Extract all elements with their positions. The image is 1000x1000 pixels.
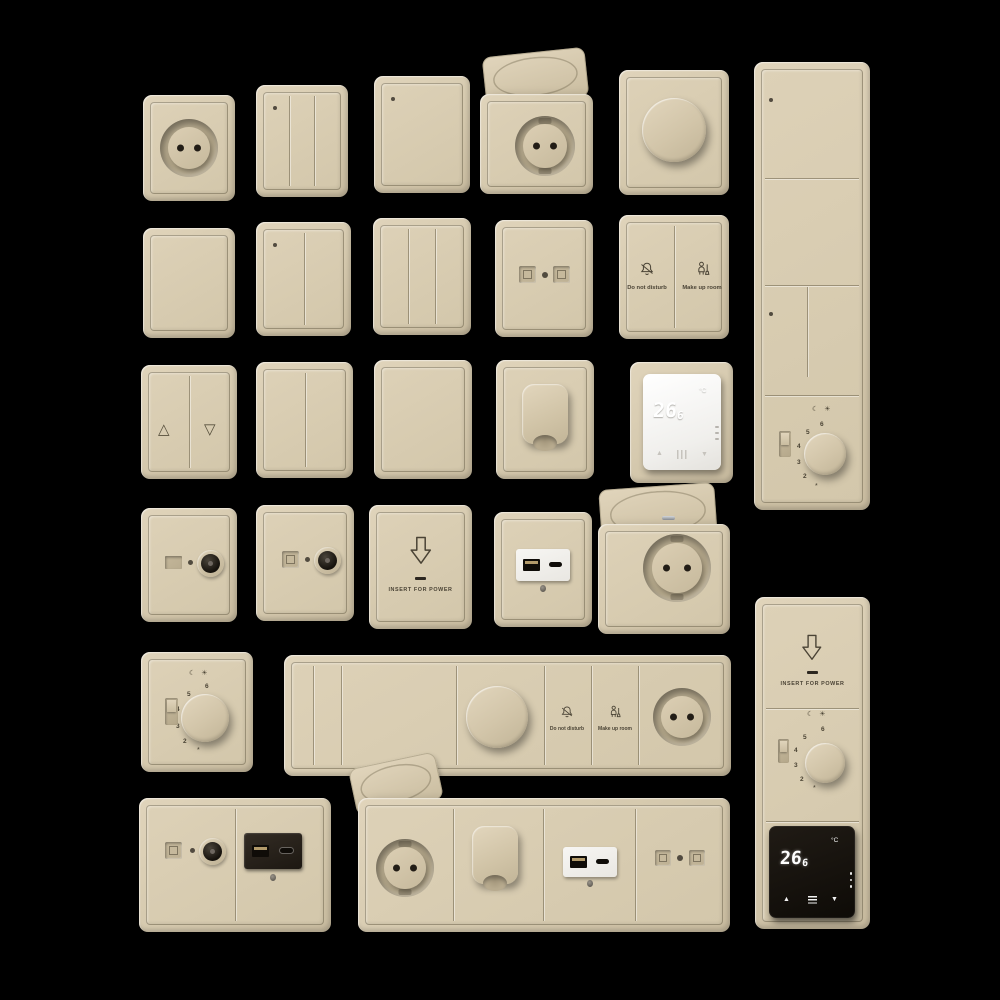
section-divider bbox=[453, 809, 455, 921]
horizontal-multigang-panel[interactable]: Do not disturb Make up room bbox=[284, 655, 731, 776]
switch-rockers[interactable] bbox=[380, 225, 464, 328]
rocker-divider bbox=[289, 96, 291, 186]
dial-number: 3 bbox=[797, 460, 801, 467]
screw bbox=[540, 585, 546, 592]
toggle-handle bbox=[780, 741, 787, 752]
indicator-dot bbox=[273, 243, 277, 247]
horizontal-combo-panel[interactable] bbox=[358, 798, 730, 932]
dial-mode-icons: ☾ ☀ bbox=[807, 711, 826, 718]
indicator-dot bbox=[305, 557, 310, 562]
rocker-divider bbox=[435, 229, 437, 324]
dial-number: 2 bbox=[803, 474, 807, 481]
socket-pin-hole-right bbox=[410, 865, 417, 872]
socket-recess bbox=[643, 534, 711, 602]
port-opening bbox=[286, 555, 295, 564]
dial-number: 6 bbox=[205, 684, 209, 691]
usb-c-port bbox=[280, 848, 293, 853]
rocker-divider bbox=[189, 376, 191, 468]
port-opening bbox=[169, 846, 178, 855]
insert-for-power-label: INSERT FOR POWER bbox=[755, 681, 870, 688]
socket-recess bbox=[376, 839, 434, 897]
dimmer-knob[interactable] bbox=[642, 98, 706, 162]
indicator-dot bbox=[769, 98, 773, 102]
socket-lidded-plate[interactable] bbox=[598, 524, 730, 634]
dial-number: 4 bbox=[794, 748, 798, 755]
section-divider bbox=[765, 285, 859, 287]
media-port bbox=[165, 842, 182, 859]
earth-clip-bottom bbox=[539, 168, 552, 174]
dial-number: 2 bbox=[183, 739, 187, 746]
cable-hood bbox=[522, 384, 568, 444]
card-slot[interactable] bbox=[807, 671, 818, 674]
digital-thermostat-white-plate[interactable]: °C 26 6 ▲ ▼ bbox=[630, 362, 733, 483]
switch-rockers[interactable] bbox=[263, 92, 341, 190]
section-divider bbox=[341, 666, 343, 765]
thermostat-dial-plate[interactable]: ☾ ☀ 6 5 4 3 2 * bbox=[141, 652, 253, 772]
socket-pin-hole-left bbox=[393, 865, 400, 872]
menu-icon[interactable] bbox=[677, 450, 687, 459]
temp-up-button[interactable]: ▲ bbox=[783, 896, 790, 903]
temperature-readout: 26 6 bbox=[653, 398, 684, 422]
make-up-room-label: Make up room bbox=[680, 285, 724, 293]
socket-pin-hole-right bbox=[194, 145, 201, 152]
section-divider bbox=[635, 809, 637, 921]
tv-antenna-socket-plate[interactable] bbox=[256, 505, 354, 621]
dial-number: 2 bbox=[800, 777, 804, 784]
temp-up-button[interactable]: ▲ bbox=[656, 450, 663, 457]
screw bbox=[270, 874, 276, 881]
section-divider bbox=[765, 395, 859, 397]
socket-lidded-plate[interactable] bbox=[480, 94, 593, 194]
temp-integer: 26 bbox=[652, 398, 678, 422]
thermostat-mode-toggle[interactable] bbox=[778, 739, 789, 763]
indicator-dot bbox=[391, 97, 395, 101]
rocker-divider bbox=[314, 96, 316, 186]
center-screw bbox=[677, 855, 683, 861]
temp-fraction: 6 bbox=[801, 858, 808, 869]
dial-number: 5 bbox=[803, 735, 807, 742]
tv-antenna-socket-plate[interactable] bbox=[141, 508, 237, 622]
thermostat-mode-toggle[interactable] bbox=[165, 698, 178, 725]
section-divider bbox=[638, 666, 640, 765]
section-divider bbox=[456, 666, 458, 765]
section-divider bbox=[591, 666, 593, 765]
port-opening bbox=[659, 854, 667, 862]
temp-down-button[interactable]: ▼ bbox=[831, 896, 838, 903]
rocker-divider bbox=[305, 373, 307, 467]
do-not-disturb-label: Do not disturb bbox=[547, 726, 587, 733]
earth-clip-top bbox=[539, 118, 552, 124]
media-port bbox=[165, 556, 182, 569]
cable-outlet-plate[interactable] bbox=[496, 360, 594, 479]
switch-2gang-plate[interactable] bbox=[256, 222, 351, 336]
switch-rockers[interactable] bbox=[263, 369, 346, 471]
moon-icon: ☾ bbox=[807, 711, 813, 718]
data-port-right bbox=[689, 850, 705, 866]
dial-number: 5 bbox=[806, 430, 810, 437]
switch-3gang-plate[interactable] bbox=[373, 218, 471, 335]
port-opening bbox=[693, 854, 701, 862]
blank-switch-plate[interactable] bbox=[143, 228, 235, 338]
socket-face bbox=[168, 127, 211, 170]
usb-insert bbox=[244, 833, 302, 869]
earth-clip-bottom bbox=[671, 594, 684, 600]
screw bbox=[587, 880, 593, 887]
socket-face bbox=[652, 543, 702, 593]
thermostat-dial-knob[interactable] bbox=[804, 433, 846, 475]
indicator-dot bbox=[188, 560, 193, 565]
socket-pin-hole-left bbox=[177, 145, 184, 152]
keycard-holder-plate[interactable]: INSERT FOR POWER bbox=[369, 505, 472, 629]
cable-hood bbox=[472, 826, 518, 884]
service-rockers[interactable] bbox=[626, 222, 722, 332]
section-divider bbox=[235, 809, 237, 921]
dial-mode-icons: ☾ ☀ bbox=[189, 670, 208, 677]
sun-icon: ☀ bbox=[824, 406, 830, 413]
section-divider bbox=[765, 178, 859, 180]
earth-clip-bottom bbox=[399, 889, 412, 895]
arrow-down-outline-icon bbox=[799, 633, 825, 663]
blinds-down-icon: ▽ bbox=[204, 422, 216, 437]
switch-3gang-plate[interactable] bbox=[256, 85, 348, 197]
switch-rocker[interactable] bbox=[150, 235, 228, 331]
frost-mark: * bbox=[813, 785, 816, 792]
side-buttons[interactable] bbox=[715, 426, 719, 440]
socket-pin-hole-left bbox=[533, 143, 540, 150]
temperature-readout: 26 6 bbox=[780, 848, 808, 869]
indicator-dot bbox=[190, 848, 195, 853]
do-not-disturb-label: Do not disturb bbox=[625, 285, 669, 293]
toggle-handle bbox=[781, 433, 789, 445]
section-divider bbox=[766, 708, 859, 710]
coax-connector bbox=[314, 547, 341, 574]
switch-2gang-plate[interactable] bbox=[256, 362, 353, 478]
vertical-multigang-panel[interactable]: ☾ ☀ 6 5 4 3 2 * bbox=[754, 62, 870, 510]
temp-integer: 26 bbox=[779, 848, 802, 869]
unit-label: °C bbox=[831, 838, 838, 845]
dial-mode-icons: ☾ ☀ bbox=[812, 406, 831, 413]
dial-number: 3 bbox=[176, 724, 180, 731]
port-opening bbox=[557, 270, 566, 279]
rocker-divider bbox=[674, 226, 676, 328]
frost-mark: * bbox=[197, 747, 200, 754]
arrow-down-outline-icon bbox=[407, 535, 435, 567]
rocker-divider bbox=[304, 233, 306, 325]
earth-clip-top bbox=[399, 841, 412, 847]
make-up-room-label: Make up room bbox=[595, 726, 635, 733]
section-divider bbox=[543, 809, 545, 921]
earth-clip-top bbox=[671, 536, 684, 542]
thermostat-mode-toggle[interactable] bbox=[779, 431, 791, 457]
section-divider bbox=[544, 666, 546, 765]
data-socket-2port-plate[interactable] bbox=[495, 220, 593, 337]
socket-face bbox=[523, 124, 567, 168]
switch-rockers[interactable] bbox=[263, 229, 344, 329]
switch-rocker[interactable] bbox=[381, 83, 463, 186]
blinds-up-icon: △ bbox=[158, 422, 170, 437]
thermostat-dial-knob[interactable] bbox=[181, 694, 229, 742]
indicator-dot bbox=[769, 312, 773, 316]
hinge-pin bbox=[662, 516, 675, 520]
rocker-divider bbox=[408, 229, 410, 324]
hotel-service-switch-plate[interactable]: Do not disturb Make up room bbox=[619, 215, 729, 339]
maid-icon bbox=[695, 261, 711, 277]
socket-pin-hole-right bbox=[550, 143, 557, 150]
socket-pin-hole-right bbox=[684, 565, 691, 572]
coax-connector bbox=[199, 838, 226, 865]
usb-c-port bbox=[596, 859, 609, 864]
menu-icon[interactable] bbox=[808, 896, 817, 904]
switch-rocker[interactable] bbox=[381, 367, 465, 472]
switch-1gang-plate[interactable] bbox=[374, 360, 472, 479]
maid-icon bbox=[608, 705, 622, 719]
data-port-left bbox=[519, 266, 536, 283]
thermostat-display-black: °C 26 6 ▲ ▼ bbox=[769, 826, 855, 918]
usb-a-port bbox=[252, 845, 269, 857]
data-port-left bbox=[655, 850, 671, 866]
vertical-hotel-panel[interactable]: INSERT FOR POWER ☾ ☀ 6 5 4 3 2 * °C 26 6… bbox=[755, 597, 870, 929]
card-slot[interactable] bbox=[415, 577, 426, 580]
usb-a-port bbox=[523, 559, 540, 571]
moon-icon: ☾ bbox=[189, 670, 195, 677]
sun-icon: ☀ bbox=[201, 670, 207, 677]
socket-pin-hole-left bbox=[670, 714, 677, 721]
coax-connector bbox=[197, 550, 224, 577]
socket-pin-hole-right bbox=[687, 714, 694, 721]
dial-number: 6 bbox=[820, 422, 824, 429]
indicator-dot bbox=[273, 106, 277, 110]
port-opening bbox=[523, 270, 532, 279]
socket-recess bbox=[653, 688, 711, 746]
dial-number: 3 bbox=[794, 763, 798, 770]
dial-number: 4 bbox=[797, 444, 801, 451]
temp-fraction: 6 bbox=[677, 409, 685, 422]
socket-pin-hole-left bbox=[663, 565, 670, 572]
insert-for-power-label: INSERT FOR POWER bbox=[369, 587, 472, 594]
section-divider bbox=[313, 666, 315, 765]
socket-face bbox=[384, 847, 427, 890]
center-screw bbox=[542, 272, 548, 278]
bell-slash-icon bbox=[639, 261, 655, 277]
thermostat-display-white: °C 26 6 ▲ ▼ bbox=[643, 374, 721, 470]
toggle-handle bbox=[167, 700, 176, 712]
cable-exit bbox=[533, 435, 557, 451]
sun-icon: ☀ bbox=[819, 711, 825, 718]
usb-c-port bbox=[549, 562, 562, 567]
dimmer-plate[interactable] bbox=[619, 70, 729, 195]
dial-number: 6 bbox=[821, 727, 825, 734]
media-port bbox=[282, 551, 299, 568]
tv-usb-combo-plate[interactable] bbox=[139, 798, 331, 932]
section-divider bbox=[766, 821, 859, 823]
bell-slash-icon bbox=[560, 705, 574, 719]
moon-icon: ☾ bbox=[812, 406, 818, 413]
thermostat-dial-knob[interactable] bbox=[805, 743, 845, 783]
dimmer-knob[interactable] bbox=[466, 686, 528, 748]
side-buttons[interactable] bbox=[850, 872, 853, 888]
product-render-grid: ☾ ☀ 6 5 4 3 2 * bbox=[0, 0, 1000, 1000]
temp-down-button[interactable]: ▼ bbox=[701, 451, 708, 458]
socket-1gang-plate[interactable] bbox=[143, 95, 235, 201]
socket-face bbox=[661, 696, 704, 739]
socket-recess bbox=[160, 119, 218, 177]
keycard-face bbox=[376, 512, 465, 622]
frost-mark: * bbox=[815, 483, 818, 490]
usb-insert bbox=[563, 847, 617, 877]
data-socket-frame bbox=[502, 227, 586, 330]
socket-recess bbox=[515, 116, 575, 176]
unit-label: °C bbox=[699, 388, 706, 395]
usb-charger-plate[interactable] bbox=[494, 512, 592, 627]
usb-a-port bbox=[570, 856, 587, 868]
switch-1gang-plate[interactable] bbox=[374, 76, 470, 193]
cable-exit bbox=[483, 875, 507, 891]
rocker-divider bbox=[807, 287, 809, 377]
usb-insert bbox=[516, 549, 570, 581]
blinds-switch-plate[interactable]: △ ▽ bbox=[141, 365, 237, 479]
data-port-right bbox=[553, 266, 570, 283]
